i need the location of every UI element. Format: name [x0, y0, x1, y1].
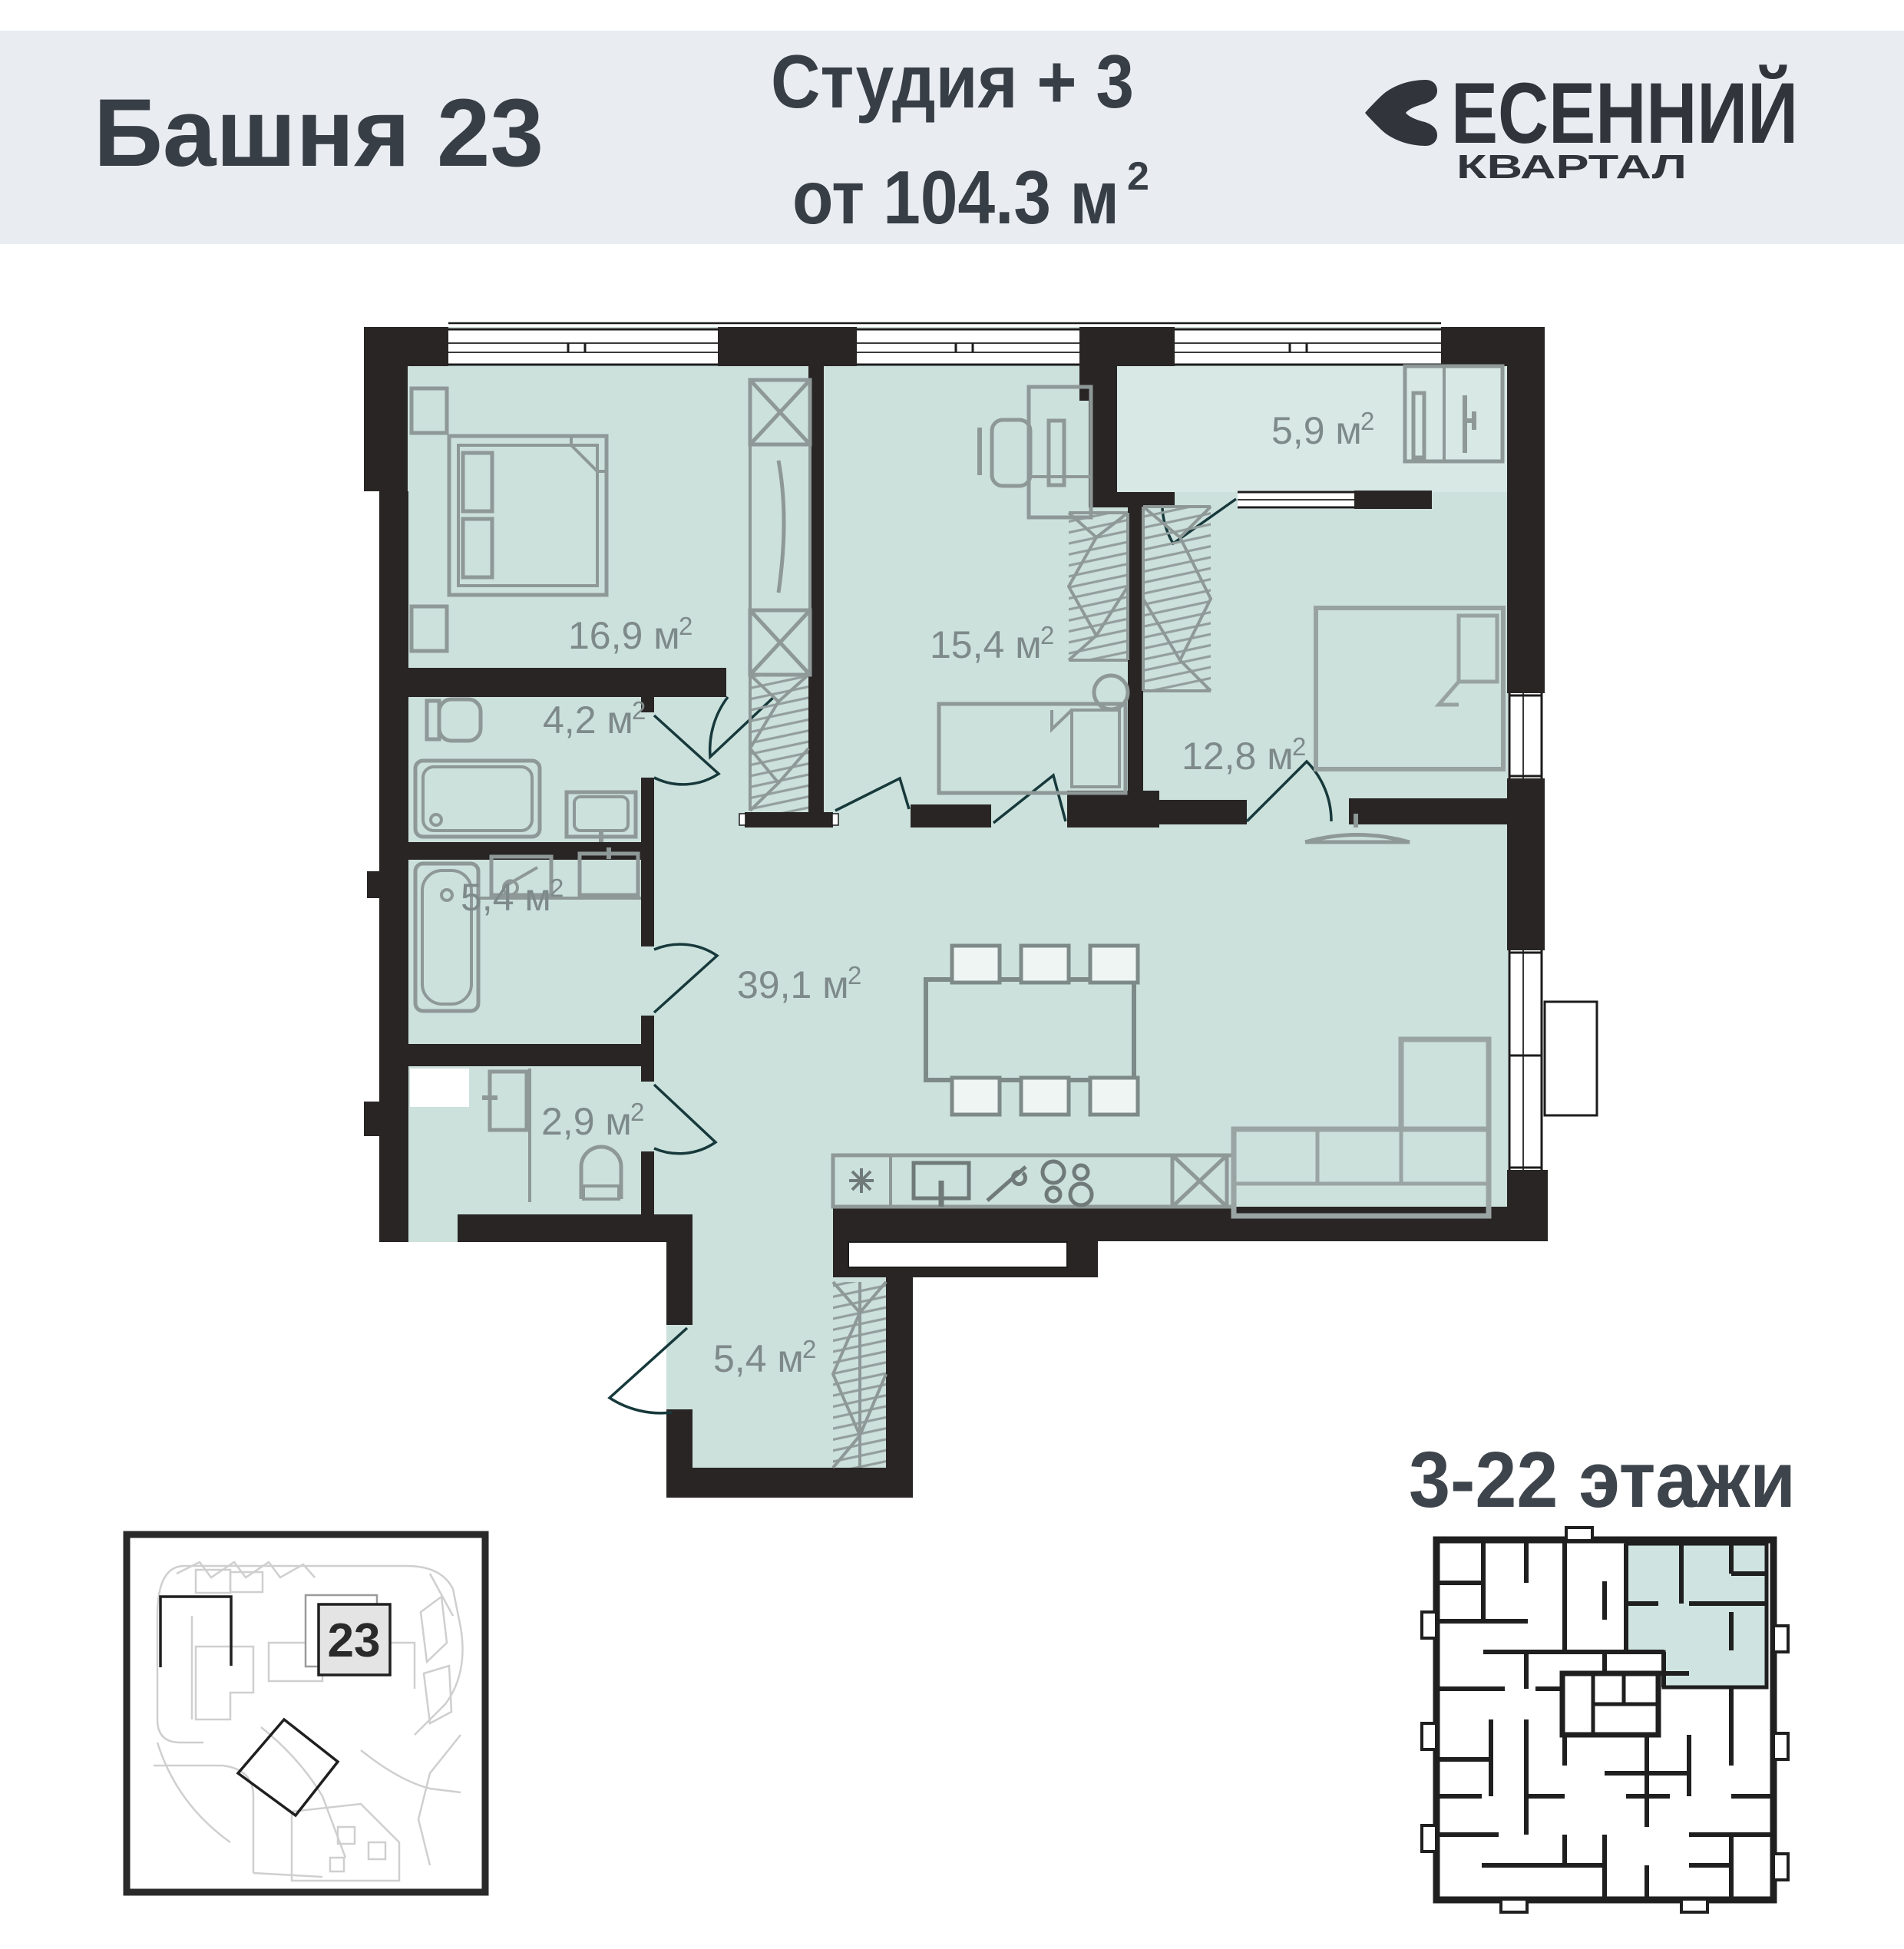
svg-text:Студия + 3: Студия + 3	[771, 39, 1134, 124]
svg-text:15,4 м: 15,4 м	[930, 623, 1042, 666]
svg-text:Башня 23: Башня 23	[94, 80, 544, 187]
svg-text:от 104.3 м: от 104.3 м	[792, 155, 1119, 239]
svg-text:16,9 м: 16,9 м	[568, 614, 680, 657]
svg-text:2: 2	[802, 1335, 816, 1363]
svg-text:5,9 м: 5,9 м	[1271, 409, 1362, 452]
svg-text:2: 2	[1040, 621, 1054, 649]
svg-text:2: 2	[848, 961, 861, 989]
svg-text:23: 23	[328, 1614, 381, 1667]
svg-text:2: 2	[679, 612, 693, 640]
svg-text:КВАРТАЛ: КВАРТАЛ	[1456, 148, 1687, 186]
svg-text:5,4 м: 5,4 м	[461, 876, 551, 919]
svg-text:2,9 м: 2,9 м	[541, 1100, 632, 1143]
svg-text:4,2 м: 4,2 м	[543, 699, 633, 742]
svg-text:ЕСЕННИЙ: ЕСЕННИЙ	[1451, 65, 1798, 161]
svg-text:2: 2	[1360, 407, 1374, 435]
svg-text:2: 2	[550, 874, 564, 902]
svg-text:2: 2	[1127, 154, 1149, 199]
svg-text:2: 2	[632, 696, 646, 725]
svg-text:5,4 м: 5,4 м	[713, 1337, 804, 1380]
svg-text:3-22 этажи: 3-22 этажи	[1409, 1435, 1796, 1524]
svg-text:12,8 м: 12,8 м	[1182, 735, 1294, 778]
svg-text:39,1 м: 39,1 м	[737, 963, 849, 1006]
svg-text:2: 2	[630, 1098, 644, 1126]
svg-text:2: 2	[1292, 732, 1306, 761]
